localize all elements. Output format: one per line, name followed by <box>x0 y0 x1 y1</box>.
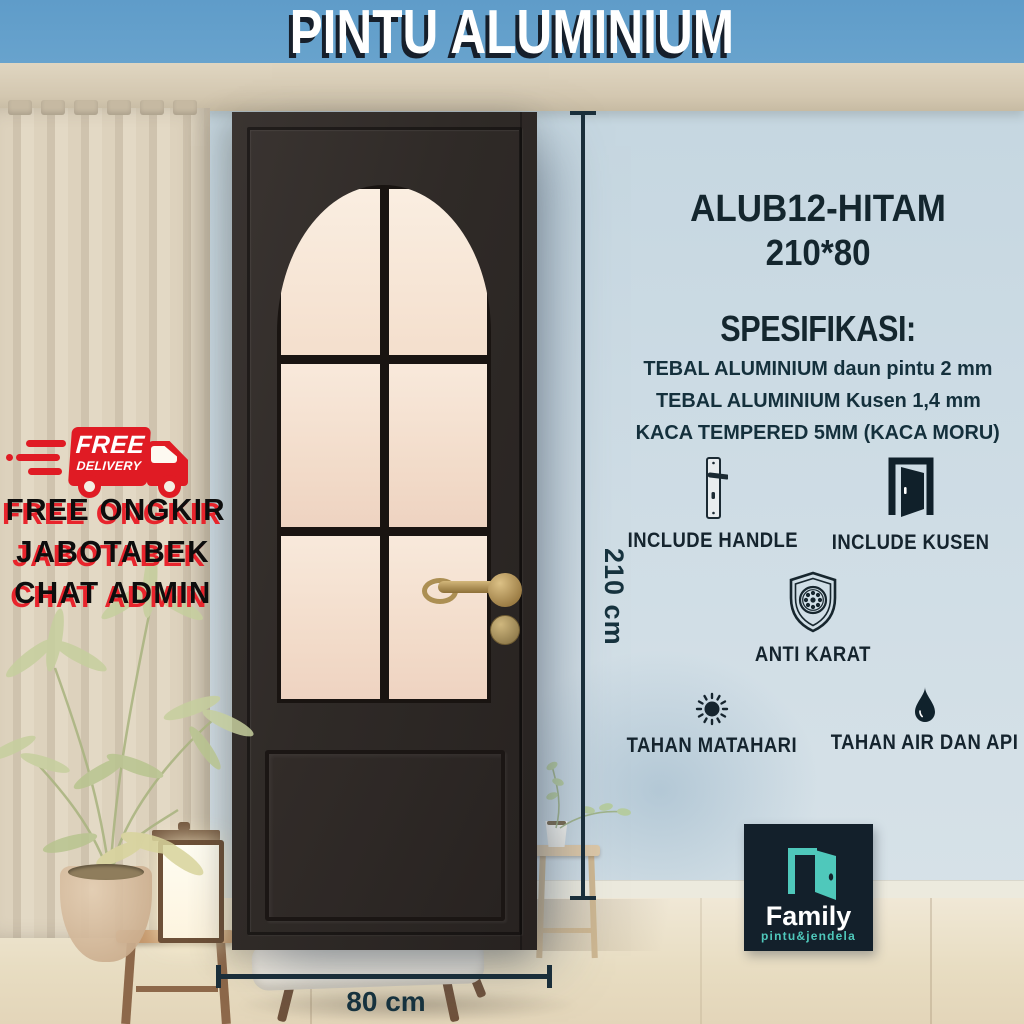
glass-pane <box>389 364 487 527</box>
glass-pane <box>281 189 380 355</box>
side-table-rail <box>542 928 592 933</box>
door-bottom-panel <box>265 750 505 921</box>
width-dimension-label: 80 cm <box>318 986 454 1018</box>
free-delivery-badge: FREE DELIVERY <box>12 424 198 500</box>
curtain-tab <box>173 100 197 115</box>
speed-line <box>16 454 60 461</box>
brand-logo: Family pintu&jendela <box>744 824 873 951</box>
brand-name: Family <box>744 902 873 930</box>
product-door <box>232 112 537 950</box>
side-table <box>532 845 600 856</box>
anti-rust-shield-icon <box>785 570 841 634</box>
truck-window <box>151 446 177 463</box>
spec-list: TEBAL ALUMINIUM daun pintu 2 mm TEBAL AL… <box>618 354 1018 450</box>
spec-line: KACA TEMPERED 5MM (KACA MORU) <box>618 418 1018 450</box>
feature-label: TAHAN AIR DAN API <box>831 731 1018 755</box>
door-handle-icon <box>698 456 728 520</box>
height-dimension-cap-bottom <box>570 896 596 900</box>
page-background: 210 cm 80 cm FREE DELIVERY FREE ONGKIR J… <box>0 0 1024 1024</box>
promo-line-3: CHAT ADMIN <box>14 575 211 611</box>
plant-soil <box>68 864 144 880</box>
promo-text-block: FREE ONGKIR JABOTABEK CHAT ADMIN <box>0 492 226 617</box>
promo-line-1: FREE ONGKIR <box>6 492 226 528</box>
curtain-tab <box>74 100 98 115</box>
glass-pane <box>281 536 380 699</box>
curtain-tab <box>140 100 164 115</box>
sun-icon <box>694 690 730 726</box>
feature-anti-karat: ANTI KARAT <box>663 570 963 667</box>
badge-delivery-text: DELIVERY <box>69 460 149 473</box>
feature-include-kusen: INCLUDE KUSEN <box>761 457 1024 555</box>
speed-line <box>6 454 13 461</box>
floor-seam <box>930 898 932 1024</box>
curtain-tab <box>8 100 32 115</box>
door-lock-knob <box>490 615 520 645</box>
water-drop-icon <box>912 686 938 724</box>
door-arched-window <box>277 185 491 703</box>
width-dimension-line <box>218 974 550 979</box>
door-handle-rosette <box>488 573 522 607</box>
size-label: 210*80 <box>618 232 1018 274</box>
door-edge-seam <box>520 112 522 950</box>
spec-title: SPESIFIKASI: <box>618 308 1018 350</box>
badge-free-text: FREE <box>70 430 151 460</box>
height-dimension-label: 210 cm <box>598 548 629 646</box>
open-door-icon <box>778 844 840 900</box>
promo-line-2: JABOTABEK <box>16 534 210 570</box>
feature-label: ANTI KARAT <box>755 643 871 667</box>
open-door-icon <box>888 457 934 519</box>
feature-tahan-air-api: TAHAN AIR DAN API <box>775 686 1024 755</box>
curtain-tab <box>41 100 65 115</box>
glass-pane <box>281 364 380 527</box>
speed-line <box>28 468 62 475</box>
width-dimension-cap-left <box>216 965 221 988</box>
feature-label: INCLUDE KUSEN <box>832 531 990 555</box>
door-floor-shadow <box>537 899 707 951</box>
glass-pane <box>389 189 487 355</box>
truck-cargo-box: FREE DELIVERY <box>68 427 151 486</box>
speed-line <box>26 440 66 447</box>
spec-line: TEBAL ALUMINIUM daun pintu 2 mm <box>618 354 1018 386</box>
spec-line: TEBAL ALUMINIUM Kusen 1,4 mm <box>618 386 1018 418</box>
page-title: PINTU ALUMINIUM <box>0 0 1024 63</box>
model-number: ALUB12-HITAM <box>618 188 1018 231</box>
width-dimension-cap-right <box>547 965 552 988</box>
height-dimension-cap-top <box>570 111 596 115</box>
glass-pane <box>389 536 487 699</box>
curtain-tab <box>107 100 131 115</box>
brand-tagline: pintu&jendela <box>744 930 873 943</box>
feature-label: TAHAN MATAHARI <box>627 734 797 758</box>
